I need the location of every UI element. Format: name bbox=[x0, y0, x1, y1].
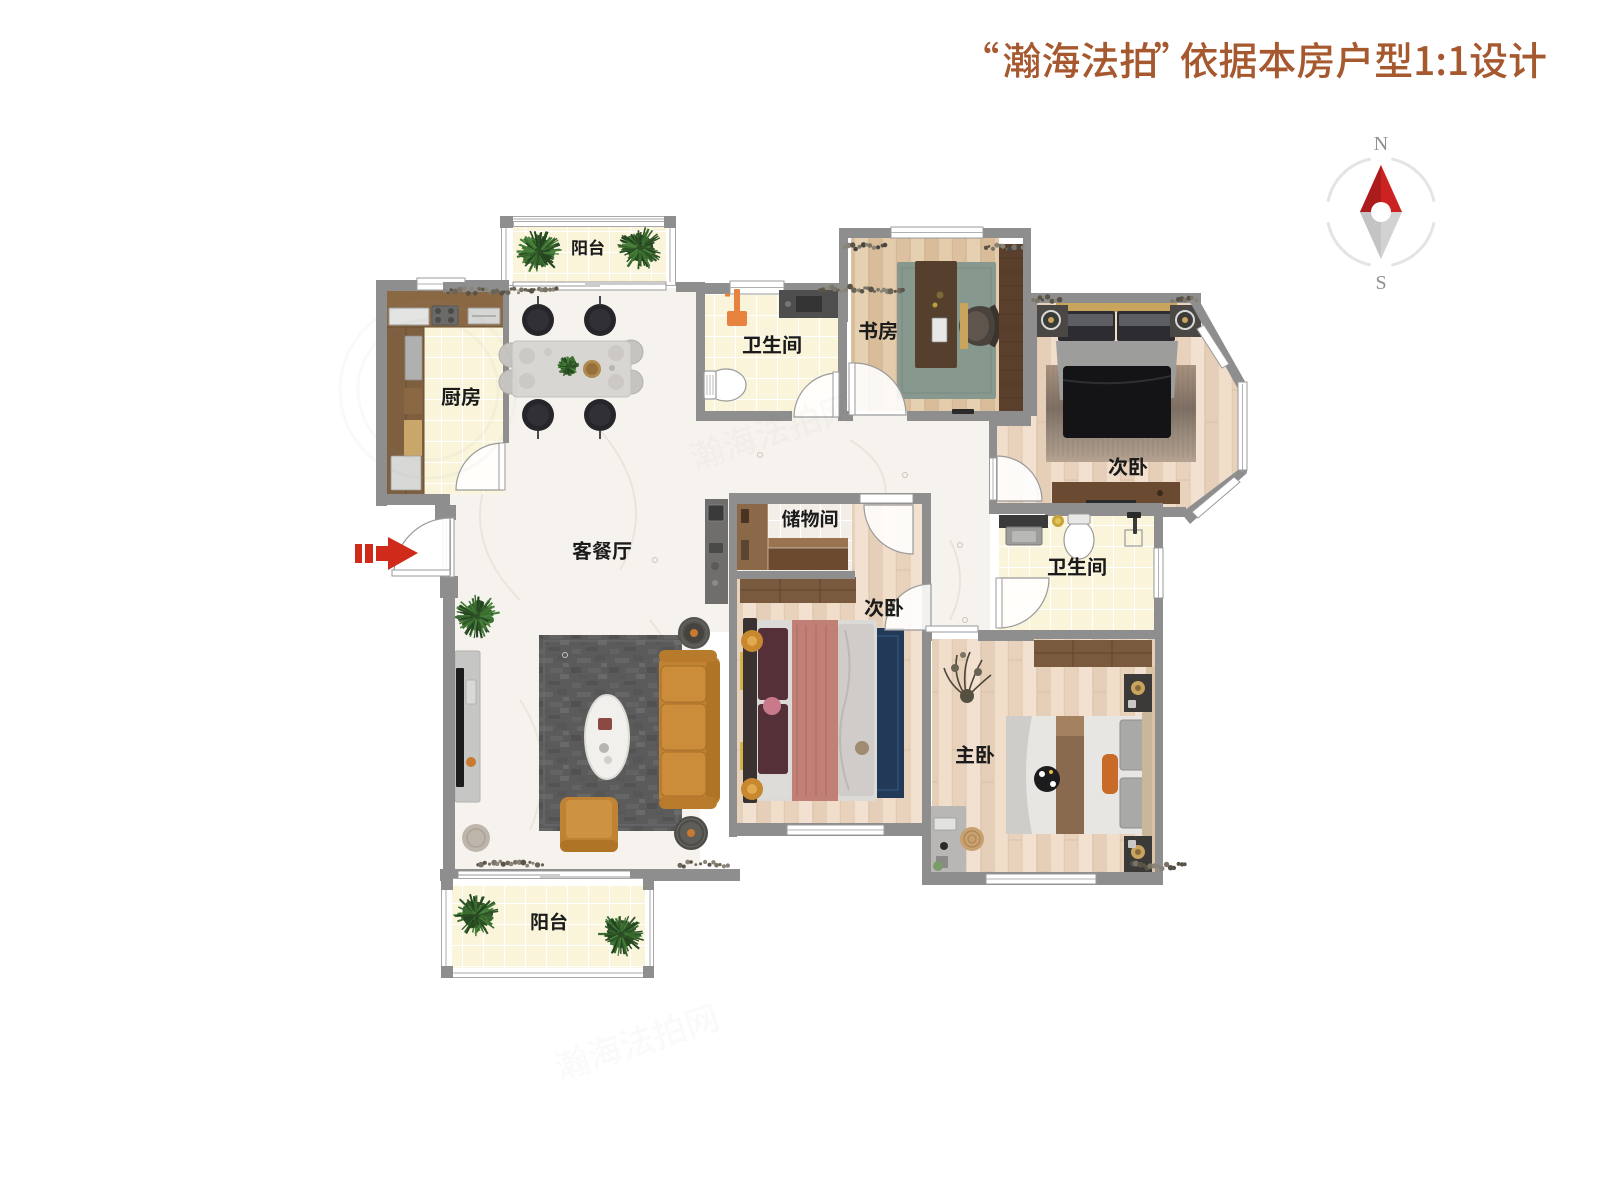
svg-text:N: N bbox=[1374, 133, 1388, 155]
svg-text:S: S bbox=[1375, 272, 1386, 294]
